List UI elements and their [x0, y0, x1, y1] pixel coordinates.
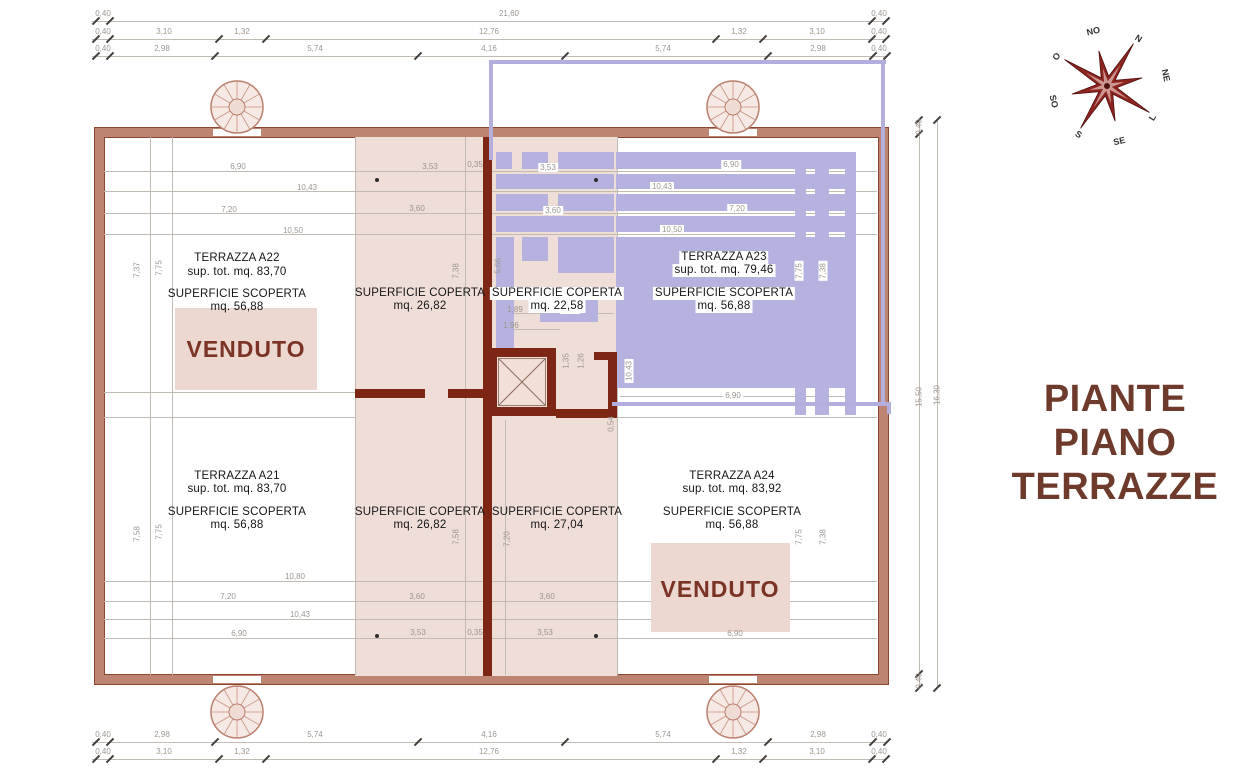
- dim-label: 7,38: [819, 261, 828, 281]
- room-open-label-a24: SUPERFICIE SCOPERTA: [663, 506, 801, 519]
- dim-label: 1,35: [562, 353, 571, 369]
- bay-turret-icon: [205, 680, 269, 744]
- dim-label: 3,10: [809, 27, 825, 36]
- plan-line: [150, 137, 151, 675]
- room-open-label-a23: SUPERFICIE SCOPERTA: [653, 287, 795, 300]
- interior-wall: [594, 352, 617, 360]
- dim-label: 7,20: [727, 204, 747, 213]
- dim-label: 0,35: [467, 160, 483, 169]
- dim-label: 0,40: [915, 119, 924, 135]
- dim-label: 7,75: [795, 261, 804, 281]
- dim-label: 5,74: [307, 44, 323, 53]
- room-open-value-a24: mq. 56,88: [706, 519, 759, 532]
- room-open-value-a21: mq. 56,88: [211, 519, 264, 532]
- dim-label: 1,32: [234, 27, 250, 36]
- dim-label: 3,10: [809, 747, 825, 756]
- page-title-line-2: PIANO: [1008, 421, 1222, 465]
- dim-label: 10,43: [625, 359, 634, 383]
- plan-line: [104, 392, 355, 393]
- dim-label: 0,40: [871, 9, 887, 18]
- dim-label: 2,98: [810, 730, 826, 739]
- highlight-outline: [881, 60, 885, 406]
- dim-label: 3,60: [409, 204, 425, 213]
- elevator-x-icon: [497, 357, 547, 407]
- compass-label-n: N: [1133, 32, 1144, 44]
- dim-label: 3,53: [538, 163, 558, 172]
- dim-label: 4,16: [481, 44, 497, 53]
- dim-label: 0,40: [871, 730, 887, 739]
- dim-label: 7,75: [795, 529, 804, 545]
- dim-label: 10,80: [285, 572, 305, 581]
- dim-tick: [882, 35, 890, 43]
- dim-label: 3,10: [156, 747, 172, 756]
- dim-label: 0,40: [95, 44, 111, 53]
- dim-label: 10,43: [297, 183, 317, 192]
- dim-label: 6,90: [721, 160, 741, 169]
- dim-tick: [882, 17, 890, 25]
- venduto-label-a24: VENDUTO: [660, 576, 779, 603]
- dim-label: 7,20: [221, 205, 237, 214]
- plan-dot: [594, 634, 598, 638]
- elevator-shaft: [488, 348, 556, 416]
- highlight-bar: [496, 152, 512, 169]
- highlight-bar: [815, 152, 829, 415]
- dim-label: 7,20: [503, 531, 512, 547]
- dim-label: 1,32: [731, 27, 747, 36]
- dim-label: 0,40: [871, 27, 887, 36]
- compass-label-e: L: [1147, 112, 1159, 122]
- highlight-outline: [489, 64, 493, 160]
- room-open-value-a22: mq. 56,88: [211, 301, 264, 314]
- coperta-value-bottom-right: mq. 27,04: [531, 519, 584, 532]
- dim-label: 2,98: [154, 730, 170, 739]
- page-title-line-1: PIANTE: [1008, 377, 1222, 421]
- dim-label: 7,58: [452, 529, 461, 545]
- dim-label: 1,32: [731, 747, 747, 756]
- room-name-a21: TERRAZZA A21: [194, 470, 279, 483]
- dim-label: 1,26: [577, 353, 586, 369]
- dim-tick: [883, 738, 891, 746]
- dim-label: 10,50: [660, 225, 684, 234]
- dim-label: 0,40: [95, 9, 111, 18]
- dim-label: 0,54: [607, 416, 616, 432]
- coperta-label-bottom-left: SUPERFICIE COPERTA: [355, 506, 485, 519]
- plan-line: [104, 417, 355, 418]
- highlight-bar: [496, 194, 548, 211]
- dim-label: 6,90: [727, 629, 743, 638]
- dim-label: 0,40: [95, 747, 111, 756]
- dim-tick: [883, 52, 891, 60]
- highlight-outline: [887, 402, 891, 414]
- dim-label: 3,53: [410, 628, 426, 637]
- dim-label: 12,76: [479, 747, 499, 756]
- room-name-a22: TERRAZZA A22: [194, 252, 279, 265]
- dim-label: 2,98: [154, 44, 170, 53]
- coperta-value-top-left: mq. 26,82: [394, 300, 447, 313]
- dim-label: 0,40: [95, 27, 111, 36]
- dim-label: 3,53: [422, 162, 438, 171]
- dim-label: 1,89: [507, 305, 523, 314]
- room-total-a22: sup. tot. mq. 83,70: [187, 266, 286, 279]
- dim-label: 21,60: [499, 9, 519, 18]
- dim-tick: [933, 684, 941, 692]
- coperta-value-top-right: mq. 22,58: [529, 300, 586, 313]
- dim-line: [92, 21, 886, 22]
- highlight-bar: [845, 152, 856, 415]
- plan-line: [172, 137, 173, 675]
- compass-label-ne: NE: [1160, 68, 1173, 82]
- coperta-value-bottom-left: mq. 26,82: [394, 519, 447, 532]
- room-total-a24: sup. tot. mq. 83,92: [682, 483, 781, 496]
- dim-label: 7,75: [155, 524, 164, 540]
- dim-label: 0,40: [915, 673, 924, 689]
- dim-label: 0,40: [871, 44, 887, 53]
- dim-label: 7,75: [155, 260, 164, 276]
- compass-label-so: SO: [1048, 94, 1061, 109]
- highlight-bar: [496, 216, 614, 232]
- dim-label: 7,38: [452, 263, 461, 279]
- page-title-line-3: TERRAZZE: [1008, 465, 1222, 509]
- highlight-bar: [522, 237, 548, 261]
- dim-label: 3,60: [539, 592, 555, 601]
- dim-label: 10,43: [650, 182, 674, 191]
- dim-label: 3,10: [156, 27, 172, 36]
- dim-label: 5,74: [307, 730, 323, 739]
- dim-label: 0,35: [467, 628, 483, 637]
- dim-line: [92, 759, 886, 760]
- venduto-label-a22: VENDUTO: [186, 336, 305, 363]
- compass-label-o: O: [1050, 51, 1062, 62]
- dim-label: 5,74: [655, 730, 671, 739]
- bay-turret-icon: [701, 680, 765, 744]
- floor-plan-page: 0,40 21,60 0,40 0,40 3,10 1,32 12,76 1,3…: [0, 0, 1249, 768]
- plan-dot: [375, 178, 379, 182]
- plan-dot: [375, 634, 379, 638]
- plan-line: [505, 420, 506, 675]
- compass-label-no: NO: [1086, 25, 1101, 38]
- room-name-a23: TERRAZZA A23: [679, 251, 768, 264]
- room-open-label-a21: SUPERFICIE SCOPERTA: [168, 506, 306, 519]
- compass-rose-icon: N NE L SE S SO O NO: [1037, 16, 1177, 156]
- dim-label: 3,53: [537, 628, 553, 637]
- dim-label: 10,43: [290, 610, 310, 619]
- dim-label: 7,58: [133, 526, 142, 542]
- page-title: PIANTE PIANO TERRAZZE: [1008, 377, 1222, 509]
- dim-label: 3,60: [409, 592, 425, 601]
- dim-label: 12,76: [479, 27, 499, 36]
- dim-tick: [882, 755, 890, 763]
- dim-label: 15,50: [915, 387, 924, 407]
- dim-label: 7,38: [819, 529, 828, 545]
- plan-line: [465, 137, 466, 675]
- highlight-outline: [612, 402, 891, 406]
- dim-label: 7,37: [133, 262, 142, 278]
- dim-label: 6,90: [723, 391, 743, 400]
- plan-line: [355, 137, 356, 675]
- dim-label: 3,60: [543, 206, 563, 215]
- dim-label: 6,90: [231, 629, 247, 638]
- room-open-label-a22: SUPERFICIE SCOPERTA: [168, 288, 306, 301]
- dim-label: 16,30: [933, 385, 942, 405]
- compass-label-s: S: [1073, 129, 1083, 141]
- highlight-bar: [558, 237, 614, 273]
- bay-turret-icon: [701, 75, 765, 139]
- dim-label: 0,40: [95, 730, 111, 739]
- dim-label: 2,98: [810, 44, 826, 53]
- room-total-a21: sup. tot. mq. 83,70: [187, 483, 286, 496]
- dim-line: [92, 39, 886, 40]
- dim-label: 5,74: [655, 44, 671, 53]
- compass-label-se: SE: [1112, 135, 1126, 147]
- interior-wall: [448, 389, 488, 398]
- dim-label: 5,66: [494, 258, 503, 274]
- highlight-bar: [795, 152, 806, 415]
- dim-label: 10,50: [283, 226, 303, 235]
- highlight-bar: [558, 152, 614, 169]
- dim-label: 1,32: [234, 747, 250, 756]
- room-open-value-a23: mq. 56,88: [696, 300, 753, 313]
- highlight-outline: [489, 60, 886, 64]
- dim-label: 1,96: [503, 321, 519, 330]
- interior-wall: [355, 389, 425, 398]
- dim-label: 4,16: [481, 730, 497, 739]
- room-total-a23: sup. tot. mq. 79,46: [672, 264, 775, 277]
- bay-turret-icon: [205, 75, 269, 139]
- coperta-label-top-right: SUPERFICIE COPERTA: [490, 287, 624, 300]
- plan-dot: [594, 178, 598, 182]
- room-name-a24: TERRAZZA A24: [689, 470, 774, 483]
- highlight-bar: [558, 194, 614, 211]
- plan-line: [617, 417, 877, 418]
- coperta-label-bottom-right: SUPERFICIE COPERTA: [492, 506, 622, 519]
- dim-label: 6,90: [230, 162, 246, 171]
- dim-label: 7,20: [220, 592, 236, 601]
- coperta-label-top-left: SUPERFICIE COPERTA: [355, 287, 485, 300]
- dim-label: 0,40: [871, 747, 887, 756]
